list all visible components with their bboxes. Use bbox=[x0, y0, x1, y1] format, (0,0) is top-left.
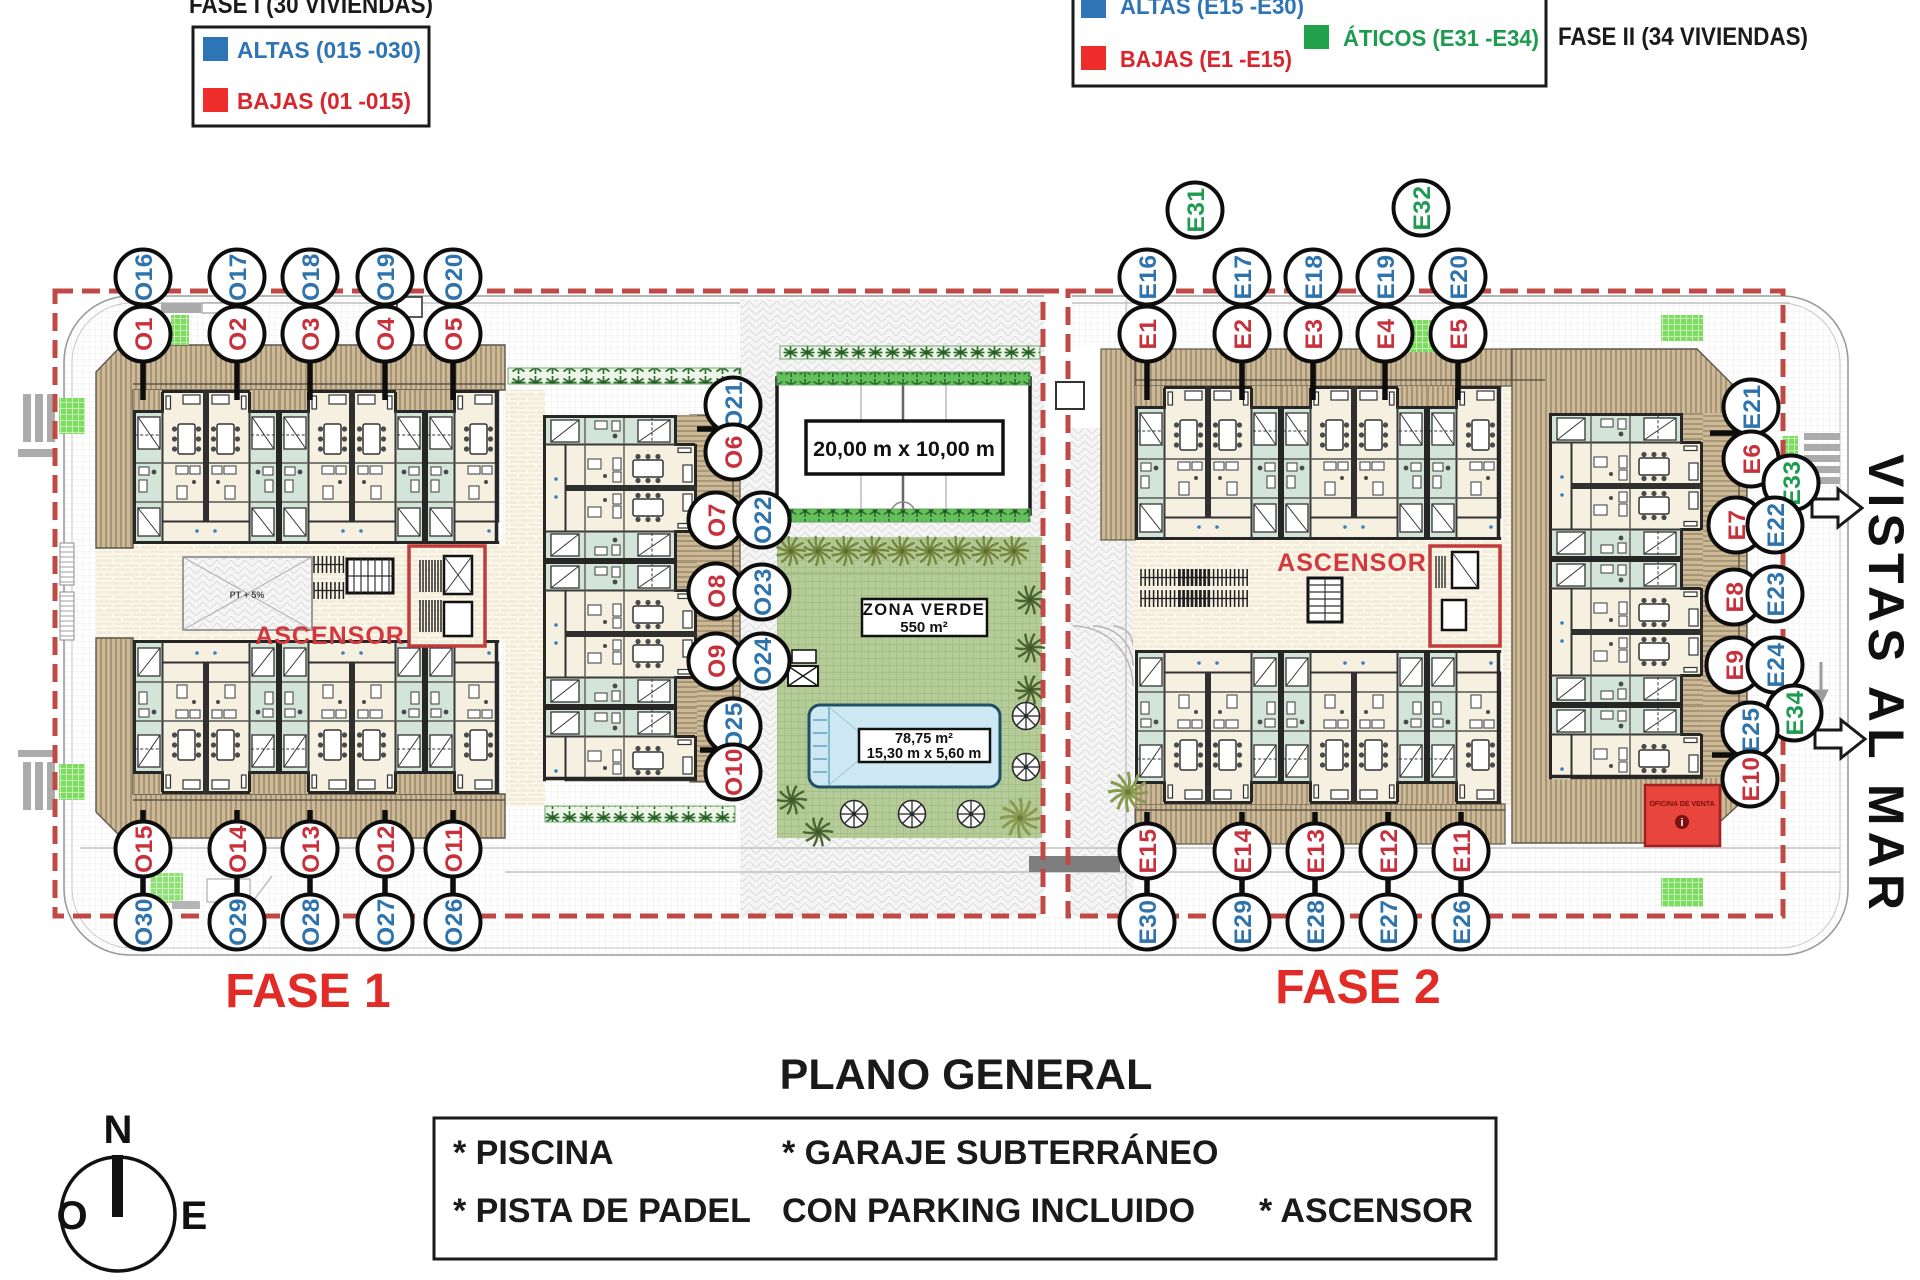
svg-text:E12: E12 bbox=[1376, 828, 1403, 873]
svg-text:O10: O10 bbox=[721, 748, 748, 796]
svg-text:O19: O19 bbox=[373, 253, 400, 301]
svg-text:E1: E1 bbox=[1135, 319, 1162, 350]
svg-text:E28: E28 bbox=[1303, 899, 1330, 944]
svg-text:* PISTA DE PADEL: * PISTA DE PADEL bbox=[453, 1192, 751, 1230]
svg-text:FASE I (30 VIVIENDAS): FASE I (30 VIVIENDAS) bbox=[189, 0, 433, 19]
svg-text:* ASCENSOR: * ASCENSOR bbox=[1259, 1192, 1473, 1230]
svg-text:PT + 5%: PT + 5% bbox=[230, 590, 265, 600]
svg-text:E22: E22 bbox=[1763, 502, 1790, 547]
svg-text:FASE II (34 VIVIENDAS): FASE II (34 VIVIENDAS) bbox=[1558, 23, 1808, 51]
svg-text:O9: O9 bbox=[704, 644, 731, 678]
svg-text:O4: O4 bbox=[373, 317, 400, 351]
svg-text:O17: O17 bbox=[225, 253, 252, 301]
svg-text:E9: E9 bbox=[1722, 650, 1749, 681]
svg-text:E21: E21 bbox=[1739, 384, 1766, 429]
svg-text:FASE 2: FASE 2 bbox=[1275, 961, 1440, 1014]
svg-text:E23: E23 bbox=[1763, 571, 1790, 616]
svg-text:E8: E8 bbox=[1722, 582, 1749, 613]
svg-text:O3: O3 bbox=[298, 317, 325, 351]
svg-text:O15: O15 bbox=[131, 825, 158, 873]
svg-text:O13: O13 bbox=[298, 825, 325, 873]
svg-text:O20: O20 bbox=[441, 253, 468, 301]
svg-text:S: S bbox=[105, 1273, 132, 1280]
svg-text:E16: E16 bbox=[1135, 254, 1162, 299]
svg-text:E5: E5 bbox=[1446, 319, 1473, 350]
svg-text:* GARAJE SUBTERRÁNEO: * GARAJE SUBTERRÁNEO bbox=[782, 1134, 1218, 1172]
svg-text:E2: E2 bbox=[1230, 319, 1257, 350]
svg-text:ÁTICOS (E31 -E34): ÁTICOS (E31 -E34) bbox=[1343, 24, 1539, 51]
svg-text:O8: O8 bbox=[704, 574, 731, 608]
svg-text:O14: O14 bbox=[225, 825, 252, 873]
svg-text:ALTAS (015 -030): ALTAS (015 -030) bbox=[237, 37, 421, 63]
svg-text:E13: E13 bbox=[1303, 828, 1330, 873]
svg-text:O18: O18 bbox=[298, 253, 325, 301]
svg-text:E32: E32 bbox=[1409, 185, 1436, 230]
svg-text:O24: O24 bbox=[750, 637, 777, 685]
svg-text:E34: E34 bbox=[1782, 690, 1809, 735]
svg-text:PLANO GENERAL: PLANO GENERAL bbox=[780, 1051, 1153, 1099]
svg-text:20,00 m x 10,00 m: 20,00 m x 10,00 m bbox=[813, 437, 995, 461]
svg-text:E17: E17 bbox=[1230, 254, 1257, 299]
svg-text:O29: O29 bbox=[225, 898, 252, 946]
svg-text:O27: O27 bbox=[373, 898, 400, 946]
svg-text:E24: E24 bbox=[1763, 642, 1790, 687]
svg-text:E26: E26 bbox=[1449, 899, 1476, 944]
svg-text:ASCENSOR: ASCENSOR bbox=[255, 622, 405, 650]
svg-text:15,30 m x 5,60 m: 15,30 m x 5,60 m bbox=[867, 746, 981, 762]
svg-text:O28: O28 bbox=[298, 898, 325, 946]
svg-text:O: O bbox=[56, 1194, 87, 1238]
svg-text:ZONA VERDE: ZONA VERDE bbox=[863, 601, 986, 619]
svg-text:i: i bbox=[1680, 817, 1683, 829]
svg-text:OFICINA DE VENTA: OFICINA DE VENTA bbox=[1649, 801, 1714, 808]
svg-text:550 m²: 550 m² bbox=[900, 619, 948, 636]
svg-text:CON PARKING INCLUIDO: CON PARKING INCLUIDO bbox=[782, 1192, 1195, 1230]
svg-text:FASE 1: FASE 1 bbox=[225, 965, 390, 1018]
svg-text:O7: O7 bbox=[704, 503, 731, 537]
svg-text:E31: E31 bbox=[1183, 187, 1210, 232]
svg-text:O22: O22 bbox=[750, 496, 777, 544]
svg-text:O21: O21 bbox=[721, 381, 748, 429]
svg-text:E29: E29 bbox=[1230, 899, 1257, 944]
svg-text:N: N bbox=[104, 1108, 133, 1152]
svg-text:ALTAS (E15 -E30): ALTAS (E15 -E30) bbox=[1120, 0, 1304, 19]
svg-text:ASCENSOR: ASCENSOR bbox=[1277, 549, 1427, 577]
svg-text:O1: O1 bbox=[131, 317, 158, 351]
svg-text:E10: E10 bbox=[1738, 756, 1765, 801]
svg-text:E15: E15 bbox=[1135, 828, 1162, 873]
svg-text:E14: E14 bbox=[1230, 828, 1257, 873]
svg-text:E: E bbox=[181, 1194, 208, 1238]
svg-text:O5: O5 bbox=[441, 317, 468, 351]
svg-text:BAJAS (E1 -E15): BAJAS (E1 -E15) bbox=[1120, 46, 1292, 72]
svg-text:E4: E4 bbox=[1373, 319, 1400, 350]
svg-text:O16: O16 bbox=[131, 253, 158, 301]
svg-text:E27: E27 bbox=[1376, 899, 1403, 944]
svg-text:* PISCINA: * PISCINA bbox=[453, 1134, 614, 1172]
svg-text:E11: E11 bbox=[1449, 829, 1476, 873]
svg-text:O12: O12 bbox=[373, 825, 400, 873]
svg-text:O6: O6 bbox=[721, 435, 748, 469]
svg-text:E25: E25 bbox=[1738, 707, 1765, 752]
svg-text:BAJAS (01 -015): BAJAS (01 -015) bbox=[237, 88, 411, 114]
svg-text:E3: E3 bbox=[1301, 319, 1328, 350]
svg-text:O30: O30 bbox=[131, 898, 158, 946]
svg-text:E20: E20 bbox=[1446, 254, 1473, 299]
svg-text:78,75 m²: 78,75 m² bbox=[895, 731, 953, 747]
svg-text:O23: O23 bbox=[750, 568, 777, 616]
svg-text:O2: O2 bbox=[225, 317, 252, 351]
svg-text:O26: O26 bbox=[441, 898, 468, 946]
svg-text:E19: E19 bbox=[1373, 254, 1400, 299]
svg-text:E18: E18 bbox=[1301, 254, 1328, 299]
svg-text:E6: E6 bbox=[1739, 444, 1766, 475]
svg-text:E30: E30 bbox=[1135, 899, 1162, 944]
svg-text:O11: O11 bbox=[441, 826, 468, 872]
